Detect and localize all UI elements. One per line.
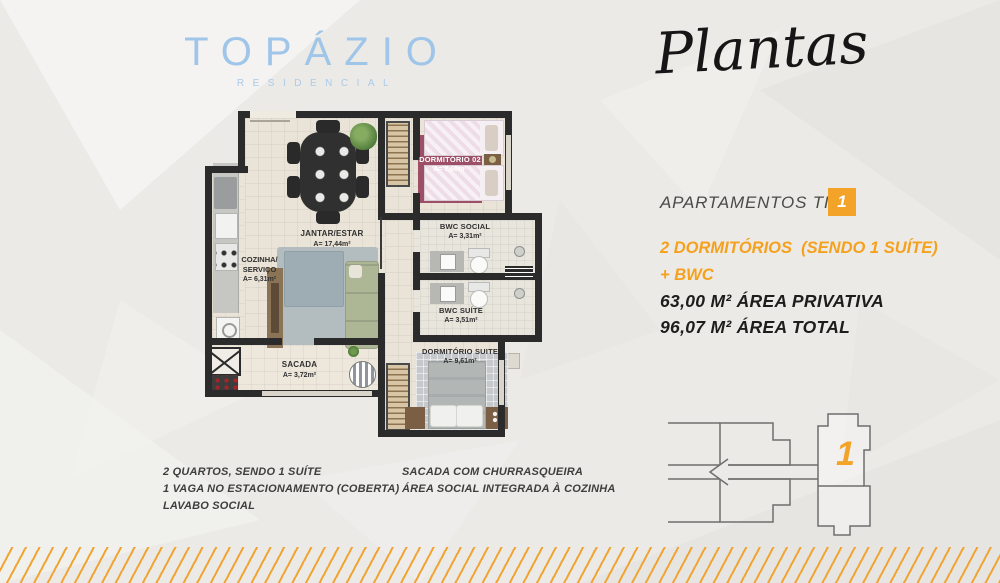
wall-bwc-left-a	[413, 220, 420, 230]
key-plan-unit-number: 1	[836, 435, 855, 473]
shaft-box	[208, 347, 241, 376]
suite-name: DORMITÓRIO SUITE	[414, 347, 506, 357]
feature-left-1: 2 QUARTOS, SENDO 1 SUÍTE	[163, 466, 321, 478]
cozinha-line2: SERVIÇO	[232, 265, 287, 275]
sacada-name: SACADA	[262, 360, 337, 371]
fridge	[214, 177, 237, 209]
plates	[304, 138, 352, 206]
single-bed-1	[424, 120, 504, 156]
label-sacada: SACADA A= 3,72m²	[262, 360, 337, 380]
kitchen-sink	[215, 213, 238, 239]
wall-bwc-left-c	[413, 280, 420, 290]
hall-suite-patch	[385, 335, 413, 342]
dining-chair-4	[356, 176, 369, 198]
rooms-highlight-line1: 2 DORMITÓRIOS (SENDO 1 SUÍTE)	[660, 239, 938, 258]
bed1-quilt	[425, 121, 480, 155]
total-area-line: 96,07 M² ÁREA TOTAL	[660, 317, 850, 338]
bwc-suite-name: BWC SUÍTE	[420, 306, 502, 316]
closet-hatch-top	[386, 121, 410, 187]
wall-balcony-divider-a	[212, 338, 282, 345]
wall-living-right-lower	[378, 273, 385, 342]
wall-bwc-top	[378, 213, 542, 220]
wall-hall-bedroom2-a	[413, 118, 420, 160]
balcony-plant	[348, 346, 359, 357]
private-area-line: 63,00 M² ÁREA PRIVATIVA	[660, 291, 884, 312]
bwc-suite-area: A= 3,51m²	[420, 316, 502, 325]
rooms-highlight-line2: + BWC	[660, 266, 714, 285]
wall-living-right-upper	[378, 118, 385, 217]
bwc-social-name: BWC SOCIAL	[424, 222, 506, 232]
brand-logo: TOPÁZIO RESIDENCIAL	[167, 30, 467, 89]
tv-screen	[271, 283, 279, 333]
bwc-social-area: A= 3,31m²	[424, 232, 506, 241]
suite-pillow-2	[456, 405, 483, 427]
nightstand-suite-left	[405, 407, 425, 429]
dorm02-area: A= 7,66m²	[412, 165, 488, 174]
page-title: Plantas	[653, 10, 870, 87]
window-bedroom2	[506, 135, 511, 190]
dining-chair-5	[316, 120, 340, 133]
dining-chair-1	[287, 142, 300, 164]
stripe-ribbon	[0, 547, 1000, 583]
apartment-type-badge: 1	[828, 188, 856, 216]
sacada-area: A= 3,72m²	[262, 371, 337, 380]
wall-bwc-bottom	[413, 335, 542, 342]
dining-chair-2	[287, 176, 300, 198]
key-plan-bottom-block	[720, 479, 790, 522]
dorm02-name: DORMITÓRIO 02	[412, 155, 488, 165]
washer-door	[222, 323, 237, 338]
wall-suite-left	[378, 342, 385, 437]
sink-social	[440, 254, 456, 270]
floor-plan: JANTAR/ESTAR A= 17,44m² COZINHA/ SERVIÇO…	[202, 105, 562, 470]
feature-left-2: 1 VAGA NO ESTACIONAMENTO (COBERTA)	[163, 483, 399, 495]
door-patch-2	[413, 230, 420, 252]
futon	[284, 251, 344, 307]
label-cozinha: COZINHA/ SERVIÇO A= 6,31m²	[232, 255, 287, 285]
door-patch-3	[413, 290, 420, 312]
dining-chair-6	[316, 211, 340, 224]
key-plan-unit-outline	[818, 414, 870, 535]
mirror-decor	[489, 156, 496, 163]
bed1-pillow	[485, 125, 498, 151]
shower-head-social	[514, 246, 525, 257]
cozinha-area: A= 6,31m²	[232, 275, 287, 284]
shower-head-suite	[514, 288, 525, 299]
cozinha-line1: COZINHA/	[232, 255, 287, 265]
feature-right-2: ÁREA SOCIAL INTEGRADA À COZINHA	[402, 483, 616, 495]
wall-bwc-left-b	[413, 252, 420, 273]
entrance-door-leaf	[250, 120, 290, 122]
wall-left-upper	[238, 111, 245, 173]
sofa-pillow	[349, 265, 362, 278]
label-jantar-estar: JANTAR/ESTAR A= 17,44m²	[277, 229, 387, 249]
label-dormitorio-suite: DORMITÓRIO SUITE A= 9,61m²	[414, 347, 506, 367]
key-plan-top-block	[720, 423, 790, 465]
wall-bwc-left-d	[413, 312, 420, 335]
entrance-door-gap	[250, 111, 296, 118]
apartment-type-label: APARTAMENTOS TIPO	[660, 193, 856, 213]
sink-suite	[440, 286, 456, 302]
pouf	[349, 361, 376, 388]
key-plan-arrow	[710, 459, 728, 485]
wall-bwc-right	[535, 220, 542, 335]
label-bwc-social: BWC SOCIAL A= 3,31m²	[424, 222, 506, 242]
suite-pillow-1	[430, 405, 457, 427]
niche-vent	[505, 266, 533, 280]
suite-area: A= 9,61m²	[414, 357, 506, 366]
wall-left-main	[205, 166, 212, 397]
label-bwc-suite: BWC SUÍTE A= 3,51m²	[420, 306, 502, 326]
window-balcony	[262, 391, 372, 396]
wall-suite-bottom	[378, 430, 505, 437]
feature-left-3: LAVABO SOCIAL	[163, 500, 255, 512]
brand-subtitle: RESIDENCIAL	[167, 78, 467, 89]
wall-balcony-divider-b	[314, 338, 378, 345]
jantar-name: JANTAR/ESTAR	[277, 229, 387, 240]
page: { "brand": {"name": "TOPÁZIO", "subtitle…	[0, 0, 1000, 583]
window-suite	[499, 360, 504, 405]
jantar-area: A= 17,44m²	[277, 240, 387, 249]
label-dormitorio-02: DORMITÓRIO 02 A= 7,66m²	[412, 155, 488, 175]
brand-name: TOPÁZIO	[167, 30, 467, 75]
feature-right-1: SACADA COM CHURRASQUEIRA	[402, 466, 583, 478]
hall-mid-floor	[385, 220, 413, 342]
toilet-social-bowl	[470, 256, 488, 274]
plant	[350, 123, 377, 150]
key-plan: 1	[668, 398, 886, 543]
